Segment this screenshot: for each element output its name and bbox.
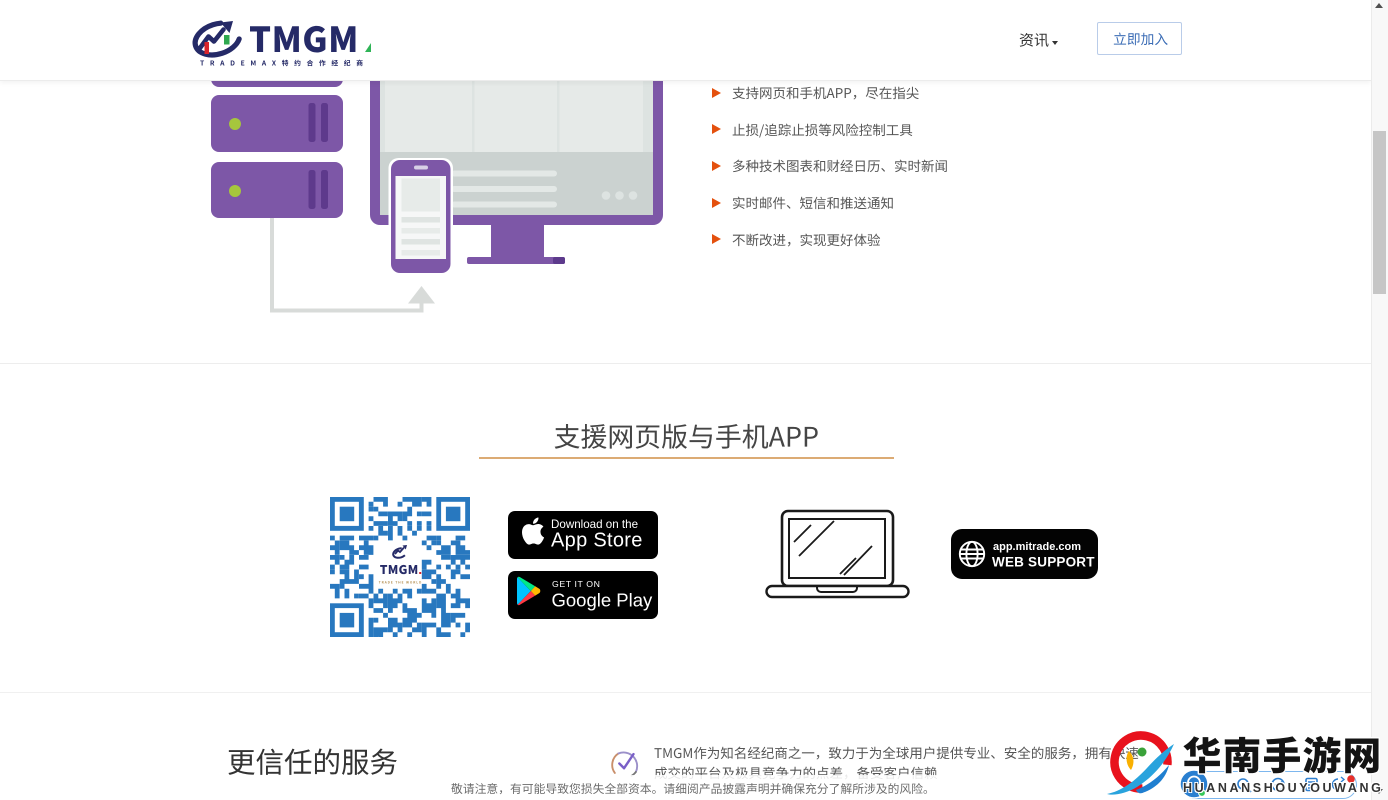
svg-text:Google Play: Google Play	[552, 590, 654, 611]
svg-text:WEB SUPPORT: WEB SUPPORT	[992, 555, 1095, 570]
svg-text:GET IT ON: GET IT ON	[552, 579, 601, 589]
svg-text:App Store: App Store	[551, 529, 643, 551]
svg-text:app.mitrade.com: app.mitrade.com	[993, 541, 1081, 553]
